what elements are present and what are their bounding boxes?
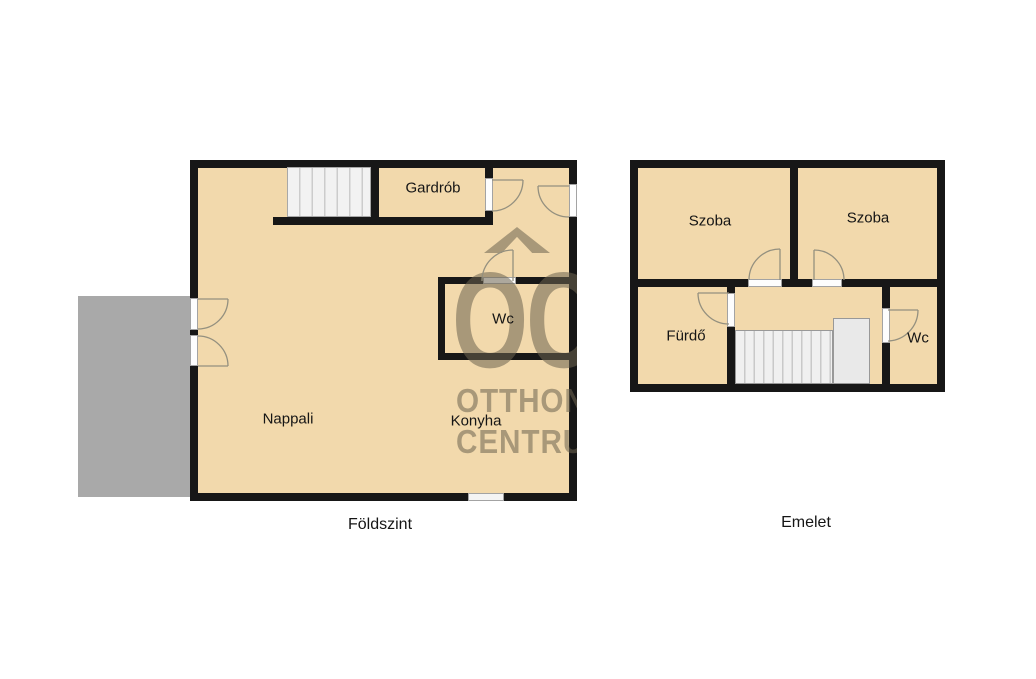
room-label-furdo: Fürdő	[666, 328, 705, 345]
wall-segment	[790, 168, 798, 287]
room-label-wc-upper: Wc	[907, 330, 929, 347]
wall-segment	[638, 279, 748, 287]
ground-floor-plan	[190, 160, 577, 501]
ground-floor-caption: Földszint	[348, 516, 412, 534]
door-jamb	[569, 184, 577, 217]
door-jamb	[485, 178, 493, 211]
wall-segment	[273, 217, 492, 225]
room-label-szoba-left: Szoba	[689, 213, 732, 230]
room-label-szoba-right: Szoba	[847, 210, 890, 227]
room-label-wc-ground: Wc	[492, 311, 514, 328]
window	[468, 493, 504, 501]
wall-segment	[782, 279, 812, 287]
room-label-gardrob: Gardrób	[405, 180, 460, 197]
door-threshold	[483, 277, 516, 284]
wall-segment	[438, 277, 445, 360]
wall-segment	[516, 277, 577, 284]
room-label-nappali: Nappali	[263, 411, 314, 428]
wall-segment	[842, 279, 937, 287]
wall-segment	[371, 168, 379, 225]
stairs-ground-floor	[287, 167, 371, 217]
wall-segment	[727, 327, 735, 384]
wall-segment	[485, 211, 493, 225]
room-label-konyha: Konyha	[451, 413, 502, 430]
wall-segment	[882, 343, 890, 384]
door-jamb	[190, 298, 198, 330]
stairs-upper-floor	[735, 330, 833, 384]
door-jamb	[882, 308, 890, 343]
wall-segment	[438, 353, 577, 360]
upper-floor-caption: Emelet	[781, 514, 831, 532]
door-threshold	[812, 279, 842, 287]
stairs-landing	[833, 318, 870, 384]
door-jamb	[190, 335, 198, 366]
wall-segment	[882, 287, 890, 308]
floorplan-canvas: OC OTTHON CENTRUM Nappali Konyha Gardró	[0, 0, 1036, 679]
door-threshold	[748, 279, 782, 287]
door-jamb	[727, 293, 735, 327]
terrace-area	[78, 296, 190, 497]
wall-segment	[485, 168, 493, 178]
